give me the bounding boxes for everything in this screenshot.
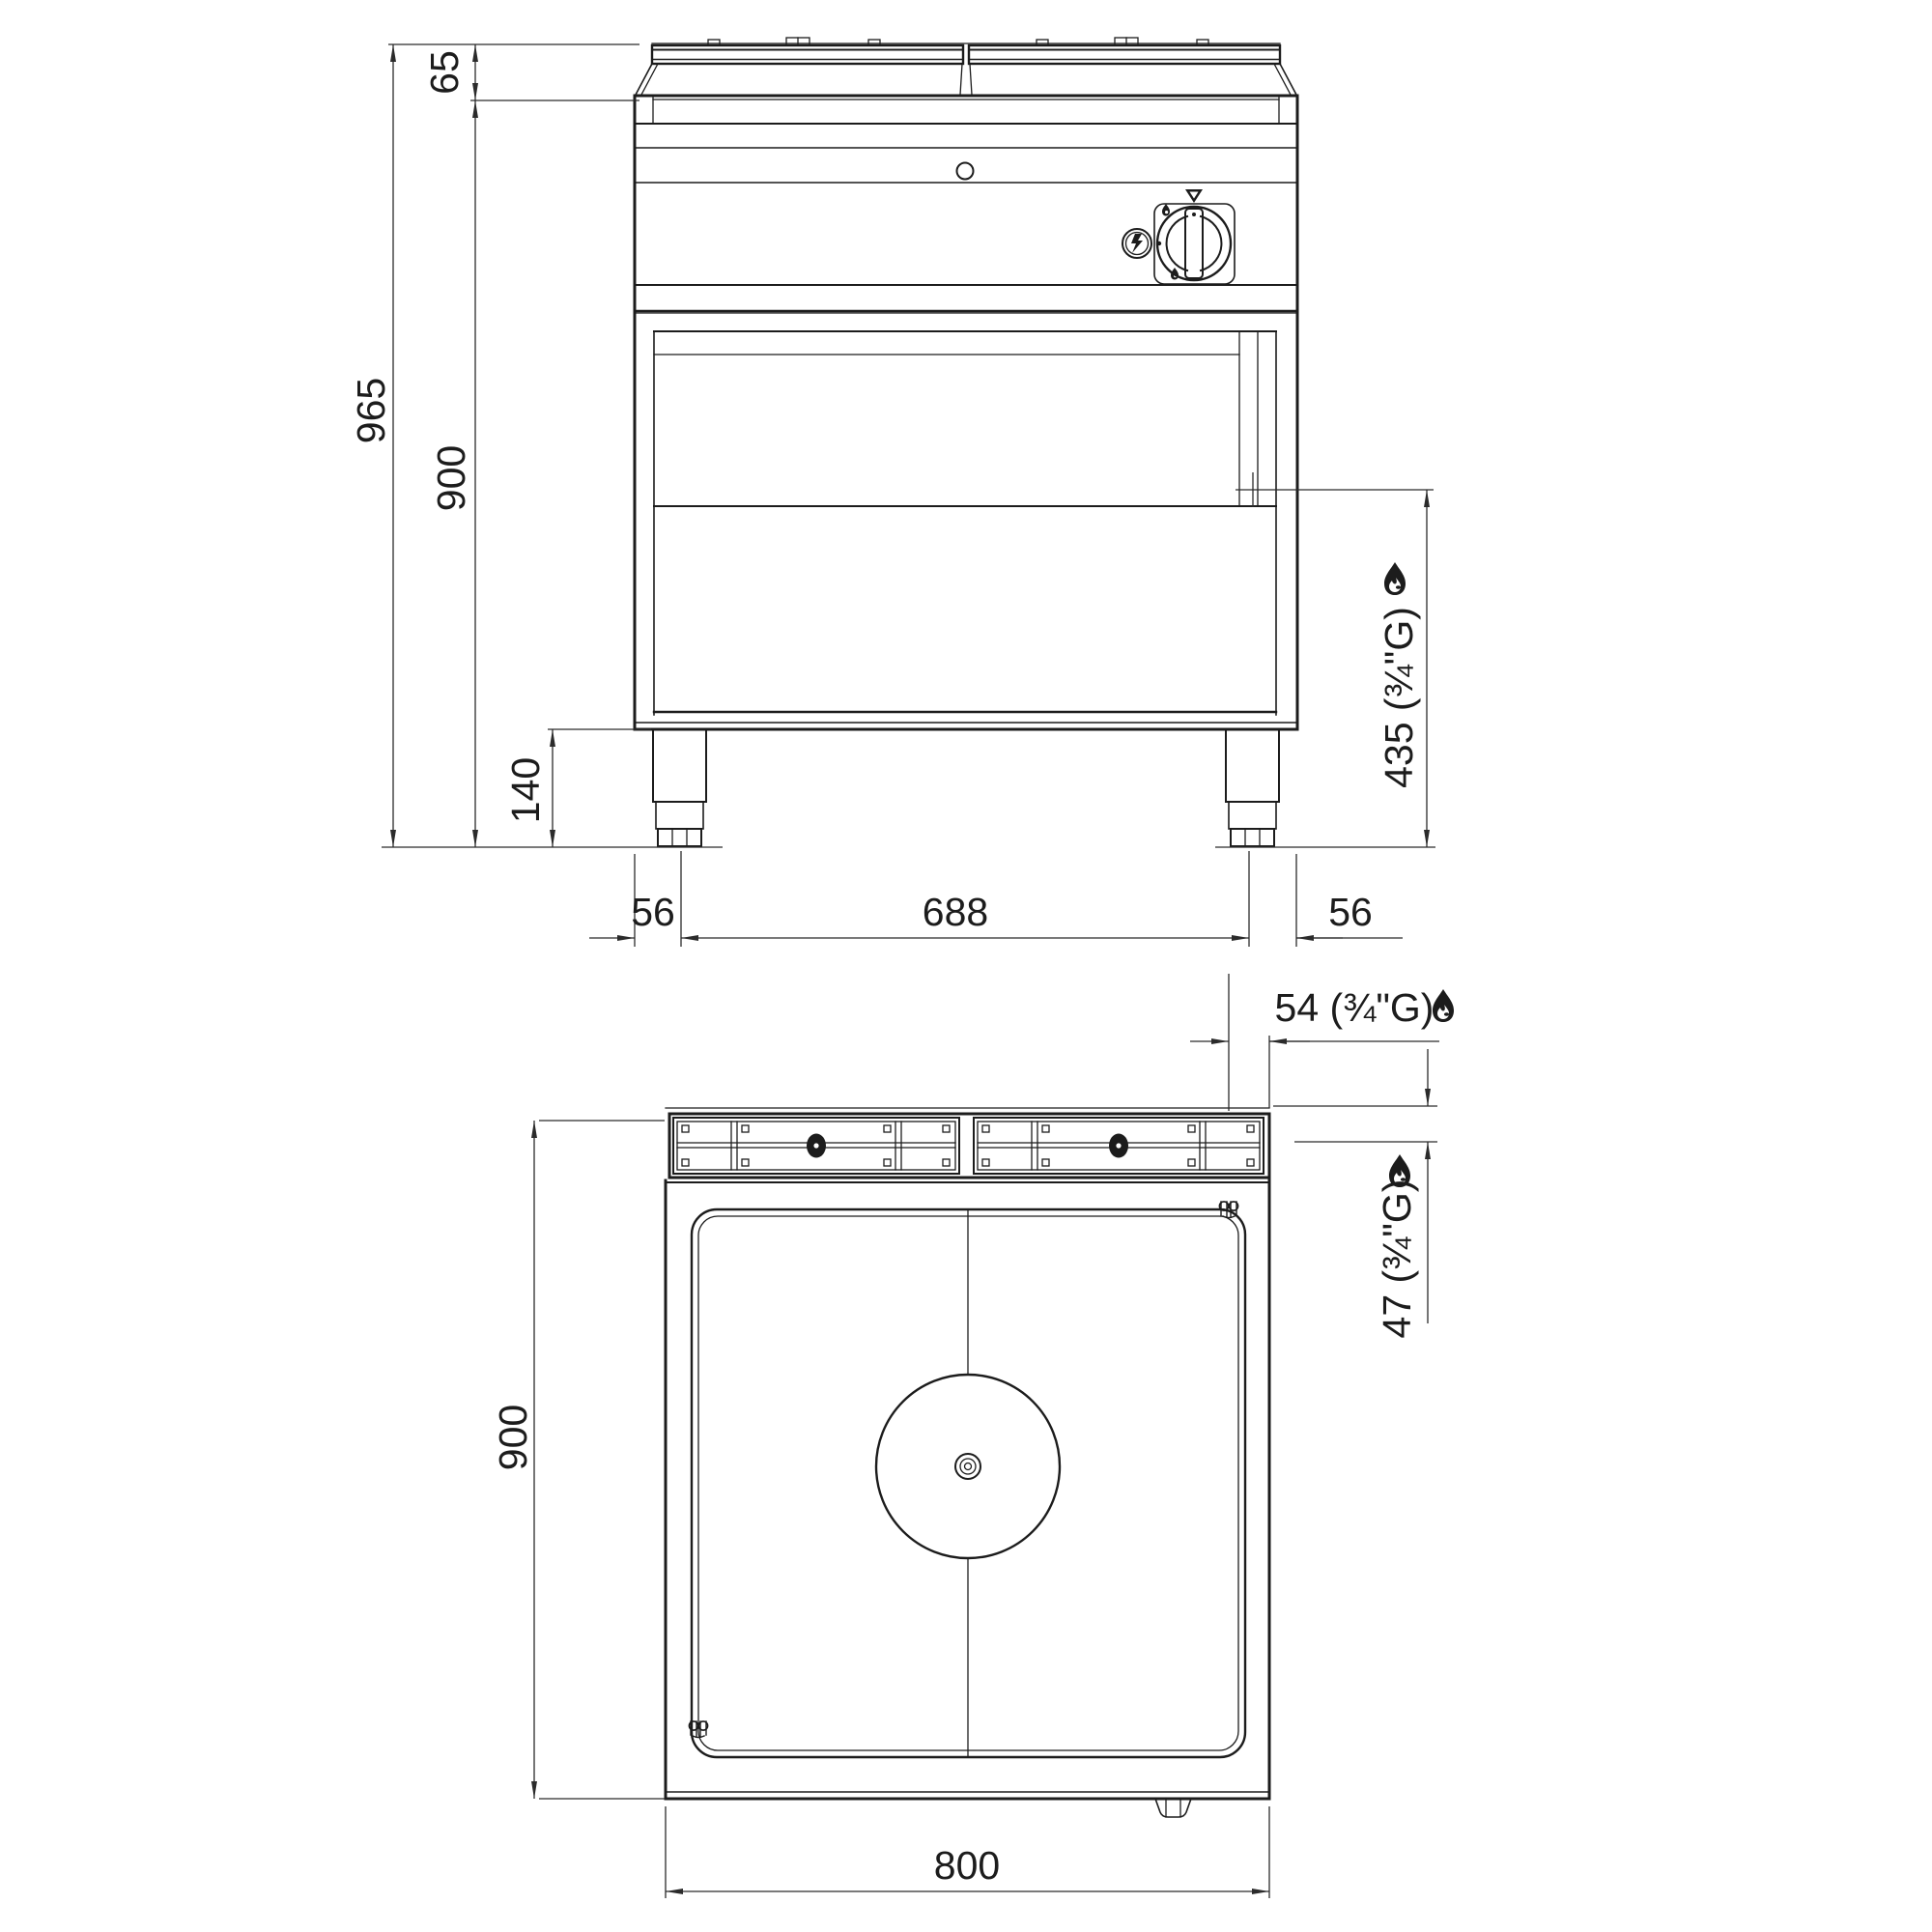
technical-drawing: 965 65 900 140 56 688 56	[0, 0, 1932, 1932]
dim-front-left-offset: 56	[589, 890, 675, 938]
dim-label-900-front: 900	[429, 445, 473, 511]
extension-lines	[382, 44, 1437, 1898]
dim-top-gas-right: 54 (¾"G)	[1190, 985, 1454, 1041]
panel-hole	[957, 163, 974, 180]
front-right-leg	[1226, 729, 1279, 846]
bottom-tab	[1155, 1799, 1191, 1817]
dim-label-65: 65	[422, 50, 467, 95]
dim-front-total-height: 965	[349, 44, 393, 847]
dim-label-140: 140	[503, 757, 548, 823]
flame-icon	[1433, 989, 1454, 1022]
dim-front-right-offset: 56	[1296, 890, 1403, 938]
dim-label-56-right: 56	[1328, 890, 1373, 934]
dim-label-56-left: 56	[631, 890, 675, 934]
max-flame-icon	[1162, 204, 1170, 216]
bullseye-icon	[955, 1454, 980, 1479]
dim-front-worktop-edge: 65	[422, 44, 475, 100]
dim-label-965: 965	[349, 378, 393, 443]
dimension-annotations: 965 65 900 140 56 688 56	[349, 44, 1454, 1898]
top-view	[666, 1108, 1269, 1817]
gas-connection-cross	[1236, 472, 1270, 507]
knob-icon[interactable]	[1154, 204, 1235, 284]
centre-burner-ring	[876, 1375, 1060, 1558]
knob-grip-bar	[1185, 209, 1203, 278]
drawing-canvas: 965 65 900 140 56 688 56	[0, 0, 1932, 1932]
knob-zero-dot	[1192, 213, 1196, 216]
burner-oval-icon	[1109, 1134, 1128, 1158]
dim-label-47: 47 (¾"G)	[1375, 1179, 1419, 1339]
piezo-igniter-button[interactable]	[1122, 229, 1151, 258]
dim-label-54: 54 (¾"G)	[1275, 985, 1435, 1030]
dim-label-688: 688	[923, 890, 988, 934]
front-burner-strip	[636, 38, 1296, 95]
dim-top-width: 800	[666, 1843, 1269, 1891]
top-hot-plate	[689, 1202, 1245, 1757]
knob-left-wing	[1167, 216, 1187, 270]
dim-front-gas-height: 435 (¾"G)	[1377, 490, 1427, 847]
dim-label-800: 800	[934, 1843, 1000, 1888]
flame-icon	[1384, 562, 1406, 595]
top-burner-strip	[666, 1108, 1269, 1182]
dim-front-leg-height: 140	[503, 729, 553, 847]
strip-tabs	[708, 38, 1208, 45]
dim-front-leg-span: 688	[681, 890, 1249, 938]
knob-right-wing	[1201, 216, 1221, 270]
dim-top-gas-back: 47 (¾"G)	[1375, 1049, 1428, 1338]
dim-label-900-top: 900	[491, 1405, 535, 1470]
dim-top-depth: 900	[491, 1121, 535, 1799]
dim-label-435: 435 (¾"G)	[1377, 607, 1421, 788]
front-worktop-band	[635, 96, 1297, 148]
dim-front-body-height: 900	[429, 100, 475, 847]
front-view	[635, 38, 1297, 846]
front-cabinet	[635, 313, 1297, 723]
front-left-leg	[653, 729, 706, 846]
knob-ring	[1157, 207, 1231, 280]
triangle-marker-icon	[1185, 189, 1203, 203]
burner-oval-icon	[807, 1134, 826, 1158]
front-control-panel	[635, 163, 1297, 312]
lightning-icon	[1131, 234, 1143, 253]
